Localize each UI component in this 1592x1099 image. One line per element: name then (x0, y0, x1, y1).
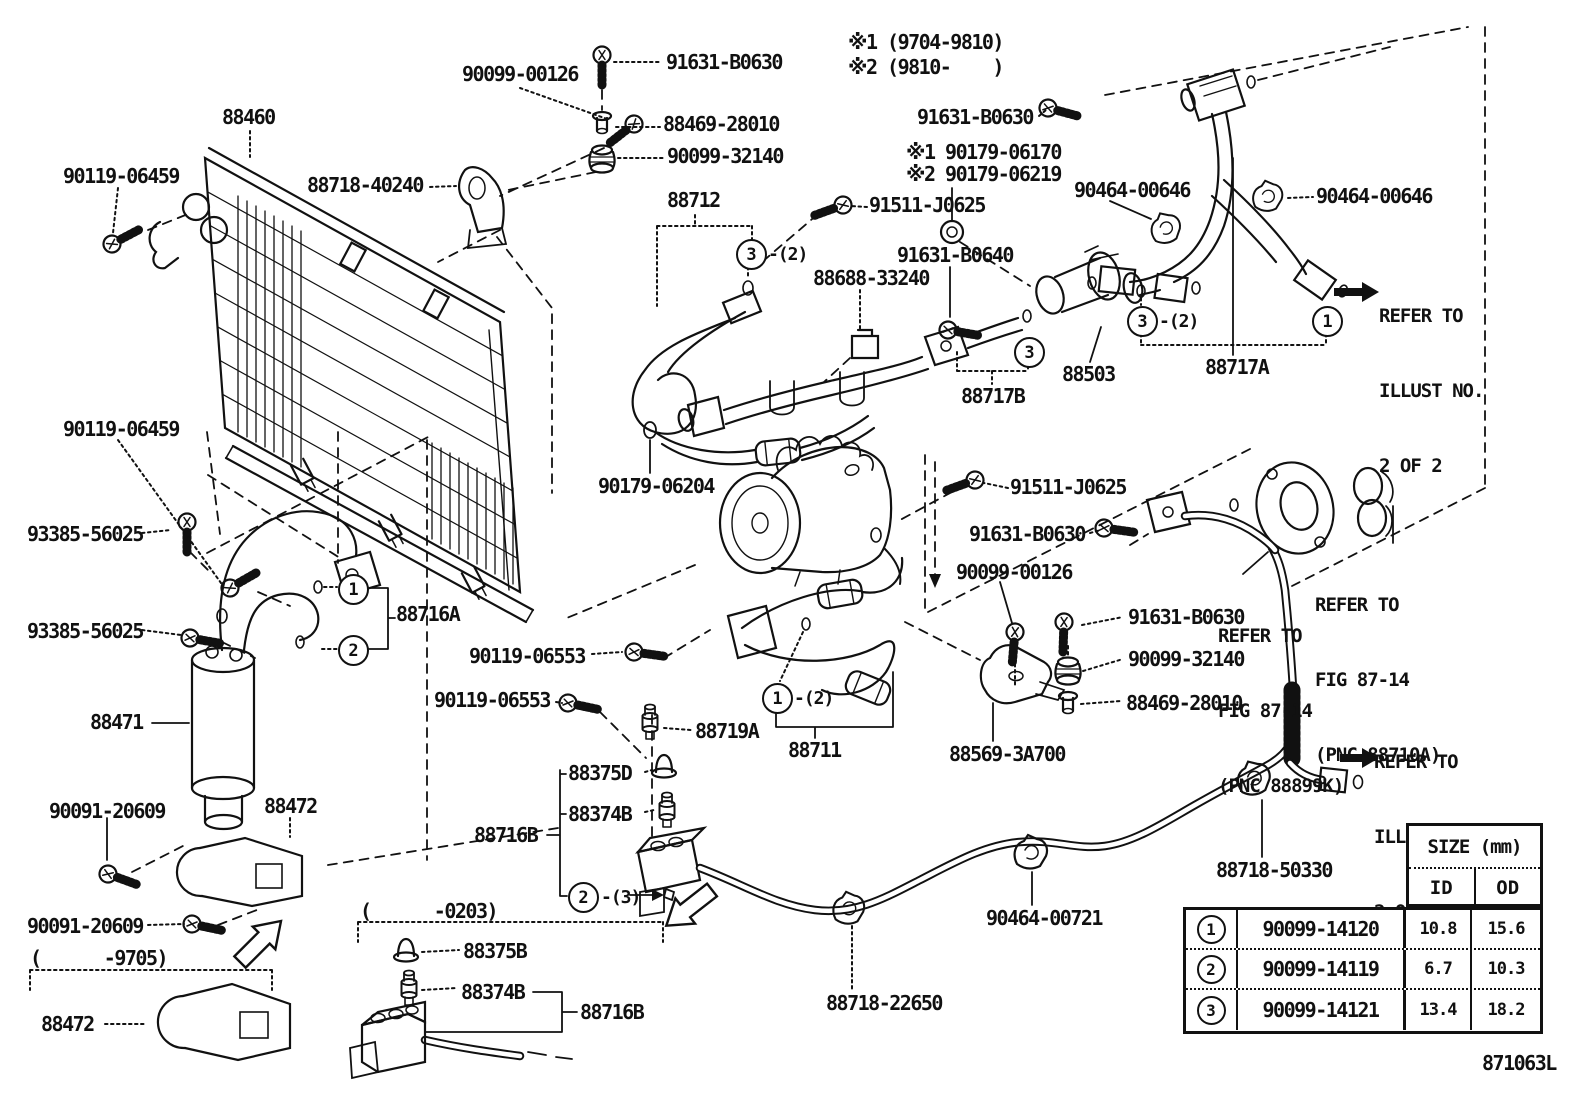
bracket-88569-drawing (981, 645, 1064, 703)
label-90119-06553-b: 90119-06553 (434, 690, 550, 710)
label-88716A: 88716A (396, 604, 459, 624)
label-90099-00126-a: 90099-00126 (462, 64, 578, 84)
label-88375D: 88375D (568, 763, 631, 783)
callout-2-pipe88716A: 2 (338, 635, 369, 666)
dashed-arrowhead (929, 574, 941, 588)
bolt-90119-06459-a-icon (101, 222, 143, 255)
bolt-90119-06553-b-icon (558, 693, 599, 718)
note-applicability-1: ※1 (9704-9810) (848, 32, 1003, 52)
label-88374B-b: 88374B (461, 982, 524, 1002)
refer-illust-top: REFER TO ILLUST NO. 2 OF 2 (1379, 254, 1483, 504)
callout-2-pipe88716B: 2 (568, 882, 599, 913)
callout-qty: -(2) (768, 244, 807, 265)
row-part-number: 90099-14120 (1238, 910, 1406, 948)
label-88471: 88471 (90, 712, 143, 732)
row-id-value: 10.8 (1406, 910, 1472, 948)
bolt-90119-06459-b-icon (218, 566, 260, 600)
callout-3-hose88717A: 3 (1127, 306, 1158, 337)
nut-90179-icon (941, 221, 963, 243)
row-od-value: 10.3 (1472, 950, 1540, 988)
label-91631-B0630-c: 91631-B0630 (969, 524, 1085, 544)
label-90179-06204: 90179-06204 (598, 476, 714, 496)
label-88716B-b: 88716B (580, 1002, 643, 1022)
label-90179-06170: ※1 90179-06170 (906, 142, 1061, 162)
block-88716B-b-drawing (350, 1002, 425, 1078)
label-90119-06459-b: 90119-06459 (63, 419, 179, 439)
label-88718-50330: 88718-50330 (1216, 860, 1332, 880)
grommet-90099-32140-b-icon (1056, 658, 1081, 685)
callout-1-pipe88716A: 1 (338, 574, 369, 605)
callout-3-pipe88717B: 3 (1014, 337, 1045, 368)
label-88460: 88460 (222, 107, 275, 127)
cap-88375B-icon (394, 939, 418, 962)
bracket-88718-40240-icon (459, 167, 506, 248)
label-91511-J0625-b: 91511-J0625 (1010, 477, 1126, 497)
refer-line: REFER TO (1379, 304, 1483, 329)
label-88375B: 88375B (463, 941, 526, 961)
drawing-number: 871063L (1482, 1053, 1556, 1073)
label-88711: 88711 (788, 740, 841, 760)
refer-line: ILLUST NO. (1379, 379, 1483, 404)
label-91631-B0640: 91631-B0640 (897, 245, 1013, 265)
label-88719A: 88719A (695, 721, 758, 741)
label-90091-20609-b: 90091-20609 (27, 916, 143, 936)
label-88712: 88712 (667, 190, 720, 210)
bolt-91631-B0640-icon (938, 320, 979, 343)
label-88472-b: 88472 (41, 1014, 94, 1034)
refer-line: 2 OF 2 (1379, 454, 1483, 479)
label-88718-40240: 88718-40240 (307, 175, 423, 195)
bolt-91631-B0630-a-icon (594, 47, 611, 86)
screw-93385-a-icon (179, 514, 196, 553)
callout-qty: -(3) (601, 887, 640, 908)
label-90464-00646-a: 90464-00646 (1074, 180, 1190, 200)
label-range-0203: ( -0203) (360, 901, 497, 921)
row-od-value: 18.2 (1472, 990, 1540, 1030)
label-90464-00646-b: 90464-00646 (1316, 186, 1432, 206)
size-table-header: SIZE (mm) ID OD (1406, 823, 1543, 907)
oring-c5-icon (314, 581, 322, 593)
label-88716B-a: 88716B (474, 825, 537, 845)
valve-88374B-b-icon (402, 971, 417, 1006)
callout-qty: -(2) (1159, 311, 1198, 332)
row-id-value: 13.4 (1406, 990, 1472, 1030)
size-table-title: SIZE (mm) (1409, 826, 1540, 869)
bolt-90099-00126-b-icon (1004, 623, 1024, 663)
label-90464-00721: 90464-00721 (986, 908, 1102, 928)
label-93385-56025-a: 93385-56025 (27, 524, 143, 544)
white-arrow-up-icon (229, 910, 293, 974)
label-90119-06553-a: 90119-06553 (469, 646, 585, 666)
bolt-91511-J0625-a-icon (812, 194, 854, 223)
label-90179-06219: ※2 90179-06219 (906, 164, 1061, 184)
size-table-row: 2 90099-14119 6.7 10.3 (1186, 950, 1540, 990)
label-88569-3A700: 88569-3A700 (949, 744, 1065, 764)
size-table-row: 1 90099-14120 10.8 15.6 (1186, 910, 1540, 950)
row-part-number: 90099-14121 (1238, 990, 1406, 1030)
label-88374B-a: 88374B (568, 804, 631, 824)
callout-3-hose88712: 3 (736, 239, 767, 270)
label-90119-06459-a: 90119-06459 (63, 166, 179, 186)
valve-88719A-icon (643, 705, 658, 740)
size-table-col-od: OD (1476, 869, 1541, 906)
bolt-90119-06553-a-icon (624, 642, 664, 664)
label-91631-B0630-b: 91631-B0630 (917, 107, 1033, 127)
label-88717B: 88717B (961, 386, 1024, 406)
row-part-number: 90099-14119 (1238, 950, 1406, 988)
row-callout: 2 (1197, 955, 1226, 984)
bracket-88472-a-drawing (177, 838, 302, 906)
label-range-9705: ( -9705) (30, 948, 167, 968)
oring-93385-icon (217, 609, 227, 623)
screw-90091-b-icon (182, 914, 223, 939)
size-table-row: 3 90099-14121 13.4 18.2 (1186, 990, 1540, 1030)
condenser-drawing (150, 148, 533, 622)
cap-88375D-icon (652, 755, 676, 778)
label-88688-33240: 88688-33240 (813, 268, 929, 288)
valve-88374B-a-icon (660, 793, 675, 828)
label-90091-20609-a: 90091-20609 (49, 801, 165, 821)
clip-88688-icon (852, 330, 878, 358)
pipe-88717B-drawing (676, 246, 1200, 436)
note-applicability-2: ※2 (9810- ) (848, 57, 1003, 77)
bracket-88472-b-drawing (158, 984, 290, 1060)
refer-line: (PNC 88710A) (1315, 743, 1440, 768)
label-88503: 88503 (1062, 364, 1115, 384)
callout-1-hose88711: 1 (762, 683, 793, 714)
refer-line: FIG 87-14 (1315, 668, 1440, 693)
receiver-drier-drawing (192, 511, 380, 829)
label-93385-56025-b: 93385-56025 (27, 621, 143, 641)
label-91631-B0630-a: 91631-B0630 (666, 52, 782, 72)
bolt-91631-B0630-c-icon (1094, 518, 1134, 540)
label-90099-32140-a: 90099-32140 (667, 146, 783, 166)
label-88472-a: 88472 (264, 796, 317, 816)
refer-line: REFER TO (1315, 593, 1440, 618)
row-id-value: 6.7 (1406, 950, 1472, 988)
row-callout: 1 (1197, 915, 1226, 944)
suction-hose-88711-drawing (728, 558, 902, 707)
label-91511-J0625-a: 91511-J0625 (869, 195, 985, 215)
callout-1-hose88717A: 1 (1312, 306, 1343, 337)
label-88718-22650: 88718-22650 (826, 993, 942, 1013)
size-table-col-id: ID (1409, 869, 1476, 906)
label-90099-00126-b: 90099-00126 (956, 562, 1072, 582)
refer-fig-88710a: REFER TO FIG 87-14 (PNC 88710A) (1315, 543, 1440, 793)
size-table: 1 90099-14120 10.8 15.6 2 90099-14119 6.… (1183, 907, 1543, 1034)
label-88469-28010-a: 88469-28010 (663, 114, 779, 134)
label-88717A: 88717A (1205, 357, 1268, 377)
row-callout: 3 (1197, 996, 1226, 1025)
oring-c6-icon (296, 636, 304, 648)
parts-diagram-cooler-piping: 90099-00126 91631-B0630 88469-28010 9009… (0, 0, 1592, 1099)
bolt-91631-B0630-d-icon (1054, 613, 1072, 652)
screw-90091-a-icon (97, 863, 139, 892)
row-od-value: 15.6 (1472, 910, 1540, 948)
callout-qty: -(2) (794, 688, 833, 709)
